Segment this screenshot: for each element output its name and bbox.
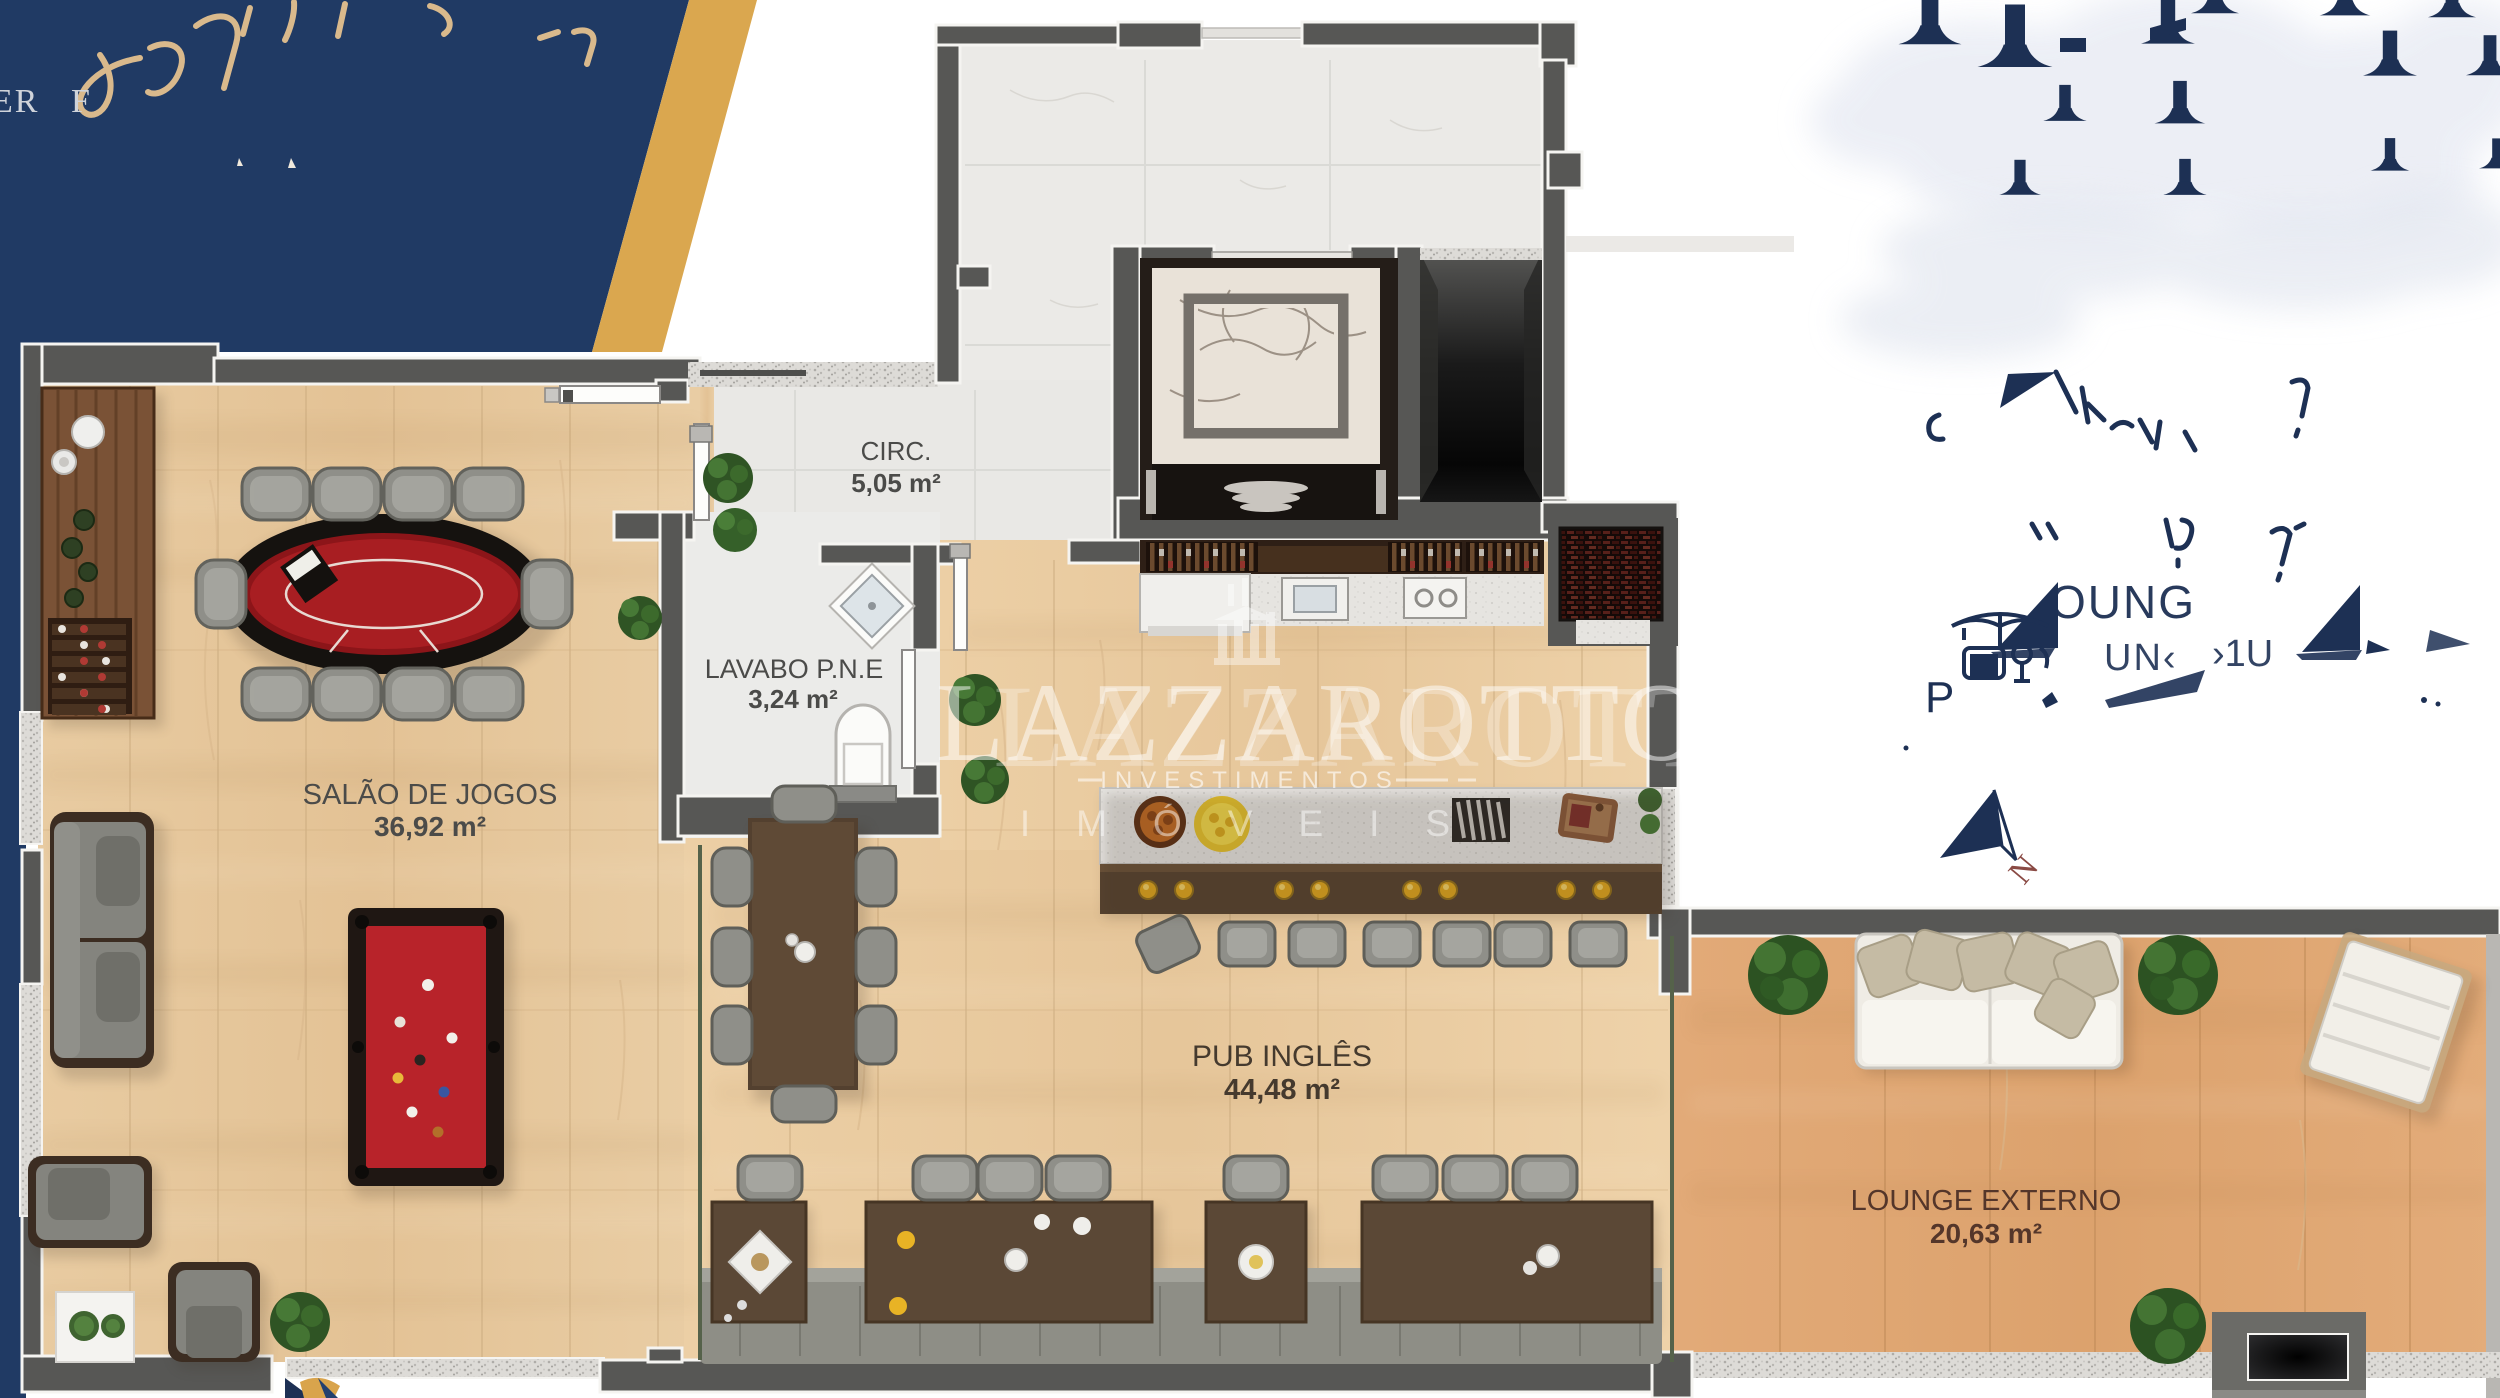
svg-text:20,63 m²: 20,63 m² — [1930, 1218, 2042, 1249]
svg-text:PUB INGLÊS: PUB INGLÊS — [1192, 1040, 1372, 1073]
svg-text:44,48 m²: 44,48 m² — [1224, 1074, 1340, 1106]
svg-text:P: P — [1925, 673, 1954, 722]
svg-text:5,05 m²: 5,05 m² — [851, 468, 941, 498]
svg-text:ER F: ER F — [0, 83, 92, 120]
svg-text:36,92 m²: 36,92 m² — [374, 811, 486, 842]
svg-text:IMÓVEIS: IMÓVEIS — [1020, 803, 1496, 844]
svg-text:OUNG: OUNG — [2050, 576, 2196, 628]
svg-text:LAVABO P.N.E: LAVABO P.N.E — [705, 654, 884, 684]
svg-text:SALÃO DE JOGOS: SALÃO DE JOGOS — [303, 777, 558, 811]
svg-text:›1U: ›1U — [2212, 633, 2273, 675]
svg-text:INVESTIMENTOS: INVESTIMENTOS — [1100, 767, 1400, 794]
svg-text:CIRC.: CIRC. — [861, 436, 932, 466]
svg-text:LOUNGE EXTERNO: LOUNGE EXTERNO — [1851, 1185, 2122, 1217]
svg-text:UN‹: UN‹ — [2104, 637, 2178, 679]
svg-text:3,24 m²: 3,24 m² — [748, 684, 838, 714]
